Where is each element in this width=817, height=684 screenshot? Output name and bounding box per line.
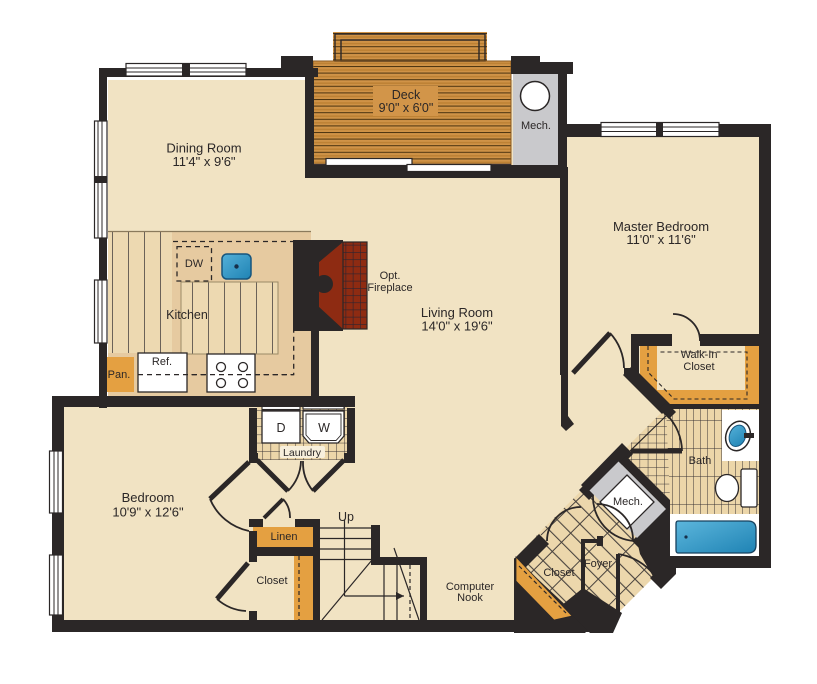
svg-text:Closet: Closet <box>256 575 287 587</box>
svg-text:Deck: Deck <box>392 88 421 102</box>
svg-text:Closet: Closet <box>683 361 714 373</box>
svg-text:Mech.: Mech. <box>613 496 643 508</box>
svg-text:DW: DW <box>185 258 204 270</box>
svg-text:Nook: Nook <box>457 592 483 604</box>
svg-text:D: D <box>276 421 285 435</box>
svg-text:11'4" x 9'6": 11'4" x 9'6" <box>172 154 235 169</box>
svg-text:Closet: Closet <box>543 567 574 579</box>
svg-text:10'9" x 12'6": 10'9" x 12'6" <box>112 505 184 520</box>
svg-text:Ref.: Ref. <box>152 356 172 368</box>
svg-text:Laundry: Laundry <box>283 447 322 459</box>
svg-text:Kitchen: Kitchen <box>166 308 208 322</box>
svg-text:Linen: Linen <box>271 531 298 543</box>
svg-text:Pan.: Pan. <box>108 369 131 381</box>
svg-text:Foyer: Foyer <box>584 558 612 570</box>
svg-text:W: W <box>318 421 330 435</box>
svg-text:Walk-In: Walk-In <box>681 349 718 361</box>
svg-text:14'0" x 19'6": 14'0" x 19'6" <box>421 319 493 334</box>
svg-text:Opt.: Opt. <box>380 270 401 282</box>
svg-text:11'0" x 11'6": 11'0" x 11'6" <box>626 232 696 247</box>
svg-text:Up: Up <box>338 510 354 524</box>
svg-text:Bedroom: Bedroom <box>122 490 175 505</box>
svg-text:9'0" x 6'0": 9'0" x 6'0" <box>379 101 434 115</box>
svg-text:Fireplace: Fireplace <box>367 282 412 294</box>
svg-text:Mech.: Mech. <box>521 120 551 132</box>
svg-text:Bath: Bath <box>689 455 712 467</box>
